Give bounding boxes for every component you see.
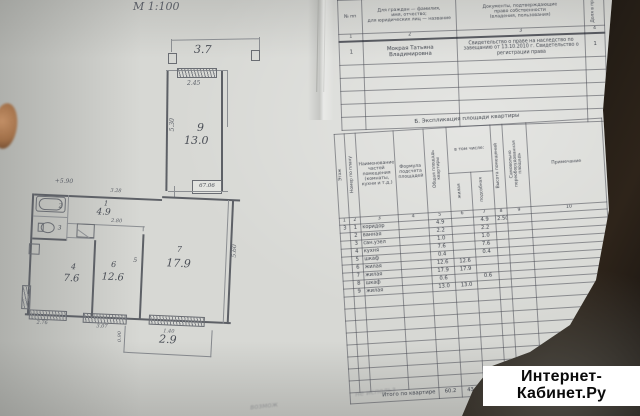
wall-room6-room7 <box>139 234 145 319</box>
col-header-num: № пп <box>338 0 363 34</box>
balcony-top-wall <box>171 38 260 41</box>
col-header-note: Примечание <box>526 118 607 206</box>
window-kitchen <box>29 309 67 321</box>
watermark-line2: Кабинет.Ру <box>517 386 606 403</box>
bathroom-number: 2 <box>59 204 63 210</box>
balcony-bottom-dim-side: 0.90 <box>118 331 123 342</box>
kitchen-area: 7.6 <box>63 274 79 285</box>
room7-number: 7 <box>177 246 182 254</box>
watermark-badge: Интернет- Кабинет.Ру <box>483 366 640 406</box>
balcony-bottom-area: 2.9 <box>159 334 177 346</box>
share-header-text: Доля в праве <box>591 0 596 23</box>
balcony-post <box>251 50 260 61</box>
col-header-including: в том числе: <box>446 125 493 174</box>
aux-header-text: подсобная <box>480 177 486 202</box>
col-header-living: жилая <box>449 172 473 211</box>
corridor-dim-inner: 2.80 <box>111 219 122 224</box>
room9-dim-side: 5.30 <box>170 118 176 131</box>
room9-dim-top: 2.45 <box>187 81 200 87</box>
balcony-top-side <box>259 37 260 50</box>
room9-number: 9 <box>197 122 204 133</box>
dim-bottom-left: 2.76 <box>36 321 47 326</box>
room6-area: 12.6 <box>101 273 124 284</box>
col-header-aux: подсобная <box>471 171 495 210</box>
wall-kitchen-room6 <box>91 240 96 316</box>
explication-table: Этаж Номер по плану Наименование частей … <box>334 118 619 405</box>
window-room7-balcony-door <box>149 315 205 327</box>
balcony-bottom-outline: 2.9 <box>123 326 212 358</box>
col-header-share: Доля в праве <box>583 0 604 26</box>
unauthorized-header-text: Самовольно переоборудованная площадь <box>508 139 524 190</box>
closet-number: 5 <box>133 258 137 264</box>
owner-name: Мокрая Татьяна Владимировна <box>363 38 458 65</box>
room7-area: 17.9 <box>166 257 191 269</box>
dim-bottom-mid: 3.07 <box>96 324 107 329</box>
balcony-top-area-label: 3.7 <box>194 44 212 56</box>
room9-right-outer-line <box>227 71 228 127</box>
watermark-line1: Интернет- <box>521 369 602 386</box>
owner-share: 1 <box>585 33 606 58</box>
floor-header-text: Этаж <box>339 169 344 182</box>
totals-total: 60.2 <box>439 386 463 398</box>
plan-num-header-text: Номер по плану <box>349 156 356 193</box>
corridor-area: 4.9 <box>96 208 111 218</box>
window-kitchen-side <box>21 285 31 309</box>
room9-right-wall <box>221 70 223 191</box>
plan-scale-label: М 1:100 <box>133 1 179 12</box>
col-header-room-name: Наименование частей помещения (комнаты, … <box>355 131 398 217</box>
kitchen-number: 4 <box>71 263 76 271</box>
elevation-mark: +5.90 <box>55 178 74 185</box>
wall-room6-room7-stub <box>143 226 144 231</box>
wall-toilet-kitchen <box>32 237 66 240</box>
toilet-number: 3 <box>58 226 62 232</box>
owner-row-num: 1 <box>339 41 364 66</box>
balcony-post <box>168 53 177 64</box>
room9-area: 13.0 <box>184 135 209 146</box>
total-area-header-text: Общая площадь квартиры <box>431 144 443 194</box>
living-header-text: жилая <box>458 183 463 198</box>
room6-number: 6 <box>111 261 116 269</box>
toilet-tank-icon <box>38 223 44 232</box>
room9-window <box>177 68 217 78</box>
col-header-owner: Для граждан — фамилия, имя, отчество; дл… <box>362 0 457 33</box>
room7-dim-side: 5.60 <box>232 244 239 258</box>
explication-wrap: Б. Экспликация площади квартиры Этаж Ном… <box>333 107 630 405</box>
corridor-dim-top: 3.28 <box>110 189 121 194</box>
totals-living: 43.5 <box>462 385 485 397</box>
balcony-top-side <box>171 39 172 52</box>
height-header-text: Высота помещений <box>495 143 502 188</box>
sink-icon <box>29 243 40 254</box>
wall-bath-toilet <box>33 215 67 217</box>
document-paper: М 1:100 3.7 2.45 5.30 9 13.0 67.06 +5.90 <box>0 0 640 416</box>
